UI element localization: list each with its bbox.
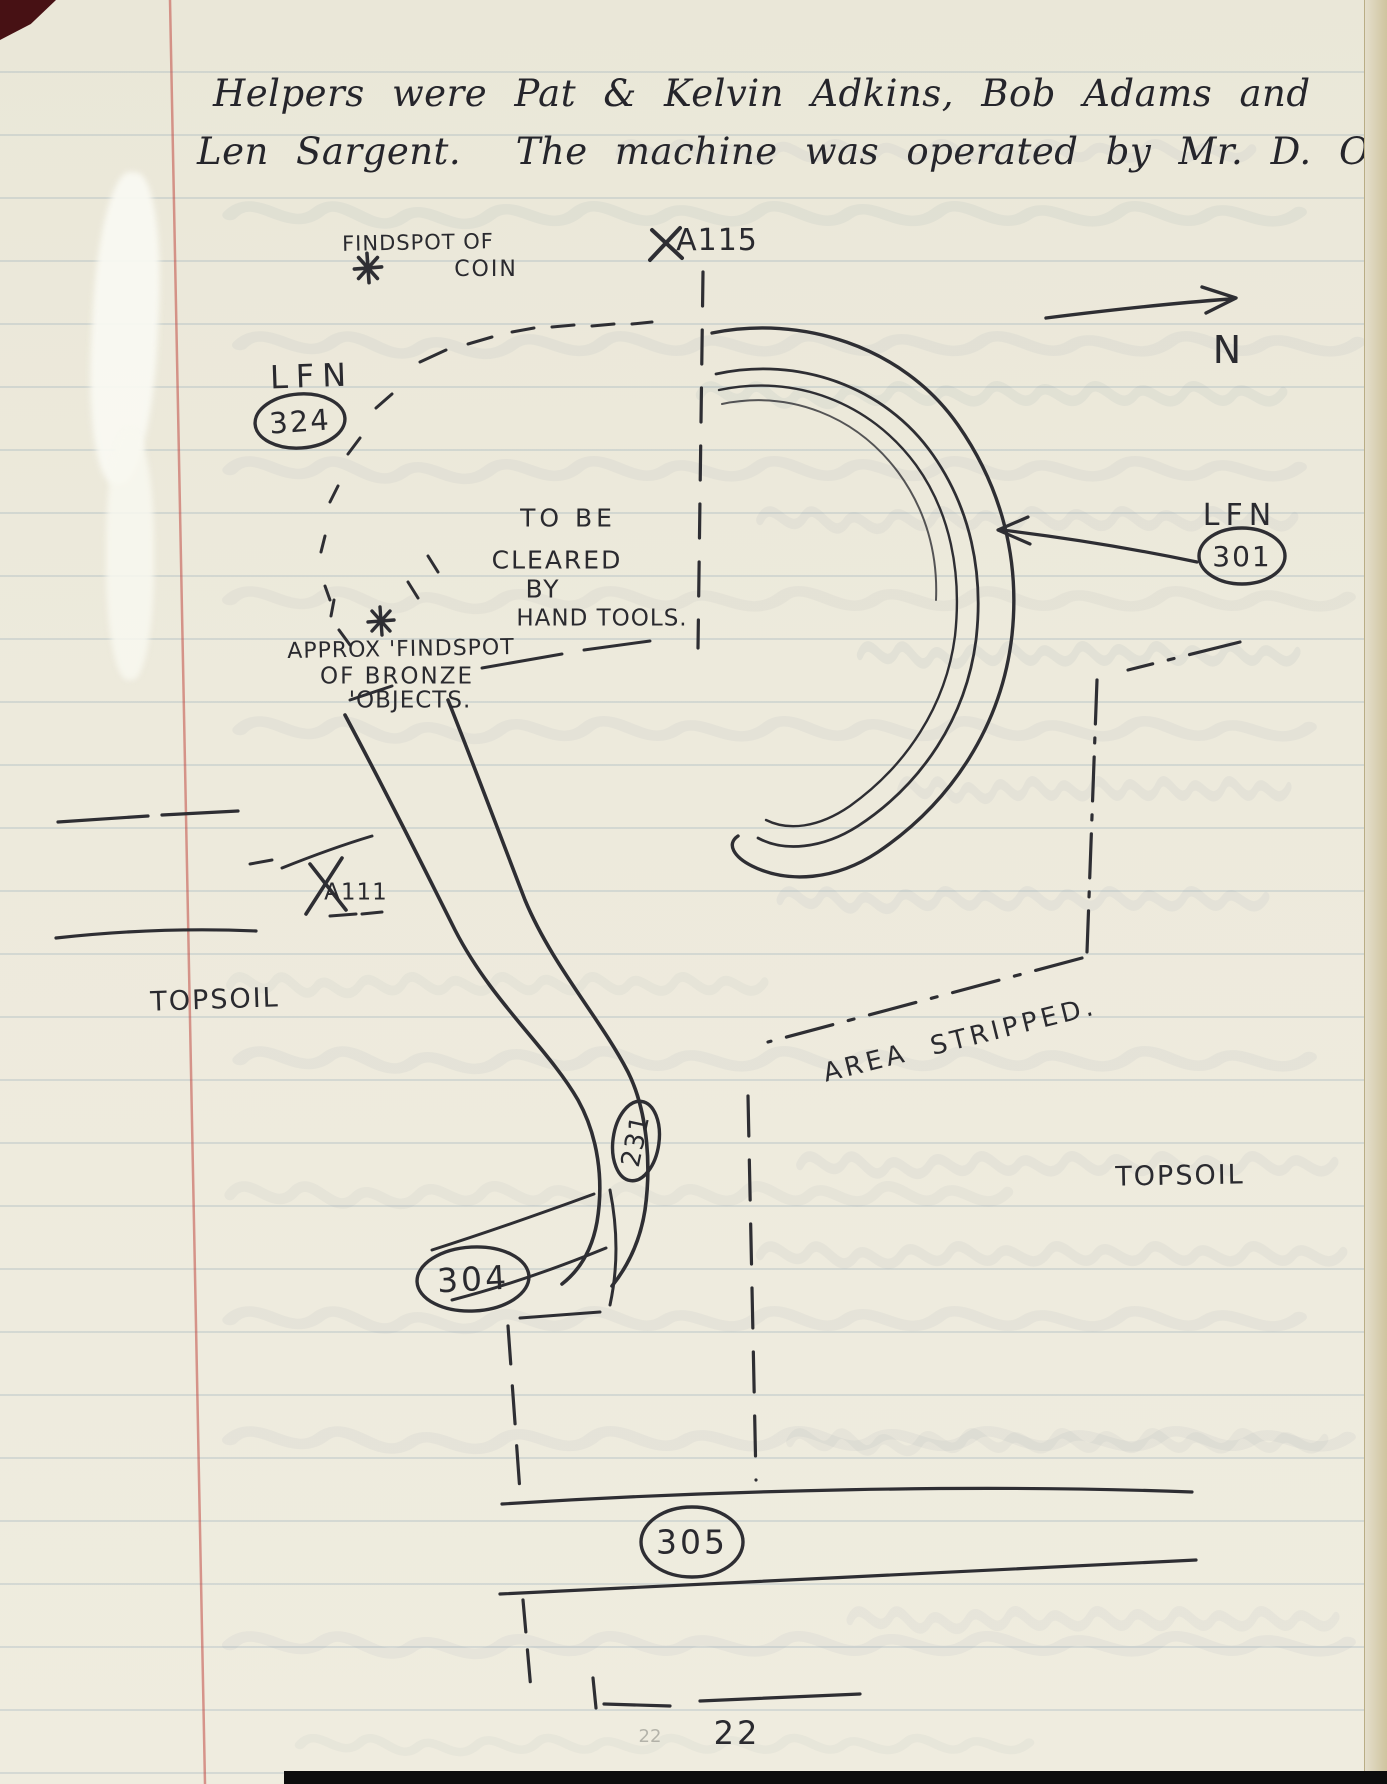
- label-304: 304: [436, 1261, 510, 1298]
- trench-drawing: [345, 700, 648, 1318]
- label-301: 301: [1212, 543, 1271, 571]
- label-cleared-1: TO BE: [520, 506, 616, 531]
- label-cleared-4: HAND TOOLS.: [516, 608, 687, 631]
- label-cleared-3: BY: [525, 577, 560, 602]
- x-marker-a111: [56, 811, 382, 938]
- area-stripped-boundary: [768, 642, 1240, 1042]
- label-coin: COIN: [454, 259, 518, 281]
- page-edge-right: [1364, 0, 1387, 1784]
- label-bronze-1: APPROX 'FINDSPOT: [287, 637, 515, 663]
- ring-ditch-drawing: [712, 328, 1014, 877]
- margin-line: [170, 0, 205, 1784]
- lower-dashed-lines: [508, 1096, 860, 1708]
- feature-number-ovals: [253, 391, 1285, 1577]
- label-lfn-324: LFN: [269, 359, 354, 394]
- label-bronze-2: OF BRONZE: [320, 666, 474, 689]
- site-plan-drawing: [0, 0, 1387, 1784]
- label-a115: A115: [676, 226, 758, 256]
- asterisk-coin-marker: [354, 253, 381, 282]
- label-cleared-2: CLEARED: [492, 548, 623, 573]
- label-324: 324: [268, 405, 331, 438]
- label-lfn-301: LFN: [1203, 501, 1277, 531]
- label-findspot-of-coin: FINDSPOT OF: [342, 231, 494, 255]
- page-number: 22: [714, 1717, 761, 1749]
- notebook-page: Helpers were Pat & Kelvin Adkins, Bob Ad…: [0, 0, 1387, 1784]
- label-a111: A111: [324, 882, 388, 905]
- label-topsoil-left: TOPSOIL: [150, 984, 280, 1016]
- label-bronze-3: 'OBJECTS.: [349, 690, 472, 713]
- ditch-305-band: [500, 1488, 1196, 1594]
- header-line-2: Len Sargent. The machine was operated by…: [197, 130, 1387, 173]
- label-north: N: [1213, 331, 1241, 369]
- label-305: 305: [656, 1526, 728, 1559]
- ring-gap-dashed-line: [698, 272, 703, 648]
- header-line-1: Helpers were Pat & Kelvin Adkins, Bob Ad…: [213, 72, 1311, 115]
- pencil-page-number: 22: [639, 1728, 662, 1746]
- scan-edge-bottom: [284, 1771, 1387, 1784]
- lfn-301-arrow: [998, 517, 1197, 562]
- label-topsoil-right: TOPSOIL: [1115, 1161, 1245, 1190]
- north-arrow: [1046, 287, 1236, 318]
